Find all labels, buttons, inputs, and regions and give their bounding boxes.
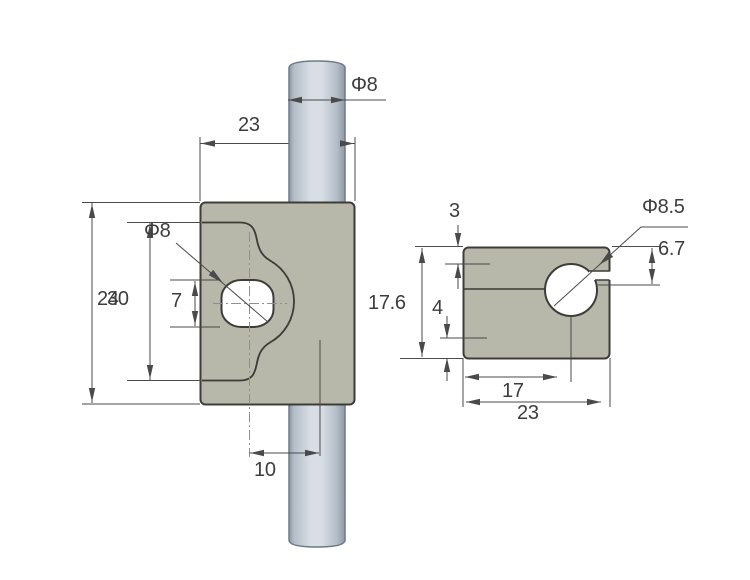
dim-label-side-width: 23 [517,402,539,425]
dim-label-side-hole-offset: 17 [502,380,524,403]
dim-label-slit-top: 3 [449,200,460,223]
dim-label-hole-flat: 7 [171,290,182,313]
rod-upper [289,61,345,203]
dim-label-side-hole-dia: Φ8.5 [642,196,685,219]
dim-label-offset: 10 [254,459,276,482]
dim-label-front-width: 23 [238,114,260,137]
technical-drawing-page: Φ8 23 30 24 Φ8 7 10 3 17.6 4 Φ8.5 6.7 17… [0,0,750,580]
side-view-slot-opening [589,272,612,281]
dim-label-rod-diameter: Φ8 [351,74,377,97]
rod-lower [289,404,345,547]
dim-label-side-height: 17.6 [368,292,406,315]
dim-label-bottom-step: 4 [432,297,443,320]
dim-label-hole-depth: 6.7 [658,238,685,261]
dim-label-inner-height: 24 [97,288,119,311]
dim-label-front-hole-dia: Φ8 [144,220,170,243]
